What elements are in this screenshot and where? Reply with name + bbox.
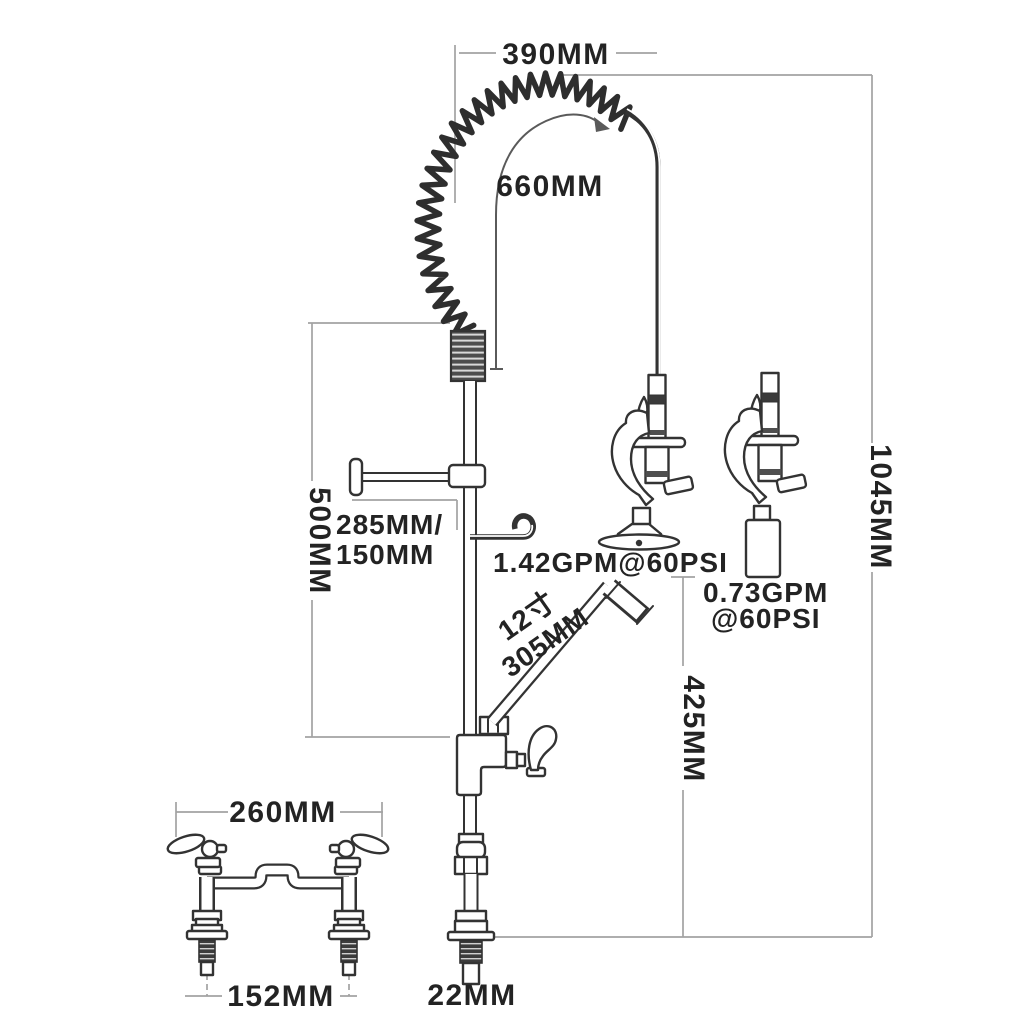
deck-left-inlet <box>187 911 227 975</box>
spray-head-stem <box>633 508 650 525</box>
tee-body <box>457 735 506 795</box>
deck-base-width-label: 260MM <box>229 796 337 829</box>
dim-660-arrowhead <box>594 117 610 132</box>
spray-valve-flow-label: 1.42GPM@60PSI <box>493 547 728 578</box>
addon-faucet-tee <box>457 726 556 795</box>
low-flow-canister <box>746 520 780 577</box>
spray-head-high-flow <box>599 375 693 550</box>
shank-hex-coupler <box>455 857 487 874</box>
valve-stem-ridge <box>517 754 525 766</box>
deck-right-inlet <box>329 911 369 975</box>
riser-shank <box>448 834 494 984</box>
deck-right-handle <box>350 831 391 857</box>
faucet-fixture <box>166 73 807 984</box>
shank-threads <box>460 941 482 963</box>
deck-left-handle-hub <box>202 841 218 857</box>
deck-left-valve <box>166 831 226 874</box>
faucet-diagram-svg: 390MM 660MM 500MM 285MM/ 150MM 1.42GPM@6… <box>0 0 1024 1024</box>
bracket-length-label-line1: 285MM/ <box>336 509 443 540</box>
spray-head-low-flow <box>725 373 807 577</box>
shank-collar <box>456 911 486 921</box>
hose-arc-width-label: 390MM <box>502 38 610 71</box>
inlet-spacing-label: 152MM <box>227 980 335 1013</box>
deck-left-handle <box>166 831 207 857</box>
deck-right-handle-hub <box>338 841 354 857</box>
riser-height-label: 500MM <box>303 487 336 595</box>
dim-660-inner-arc <box>490 115 600 369</box>
diagram-canvas: 390MM 660MM 500MM 285MM/ 150MM 1.42GPM@6… <box>0 0 1024 1024</box>
wall-bracket-plate <box>350 459 362 495</box>
deck-right-valve <box>330 831 390 874</box>
wall-bracket-clamp <box>449 465 485 487</box>
valve-lever-handle <box>529 726 557 770</box>
low-flow-neck <box>754 506 770 520</box>
shank-flange <box>448 932 494 940</box>
hose-drop <box>626 109 660 377</box>
hose-length-label: 660MM <box>496 170 604 203</box>
spray-face-center <box>636 540 642 546</box>
spout-length-label: 12寸 305MM <box>478 575 595 683</box>
shank-coupler-ball <box>457 842 485 858</box>
low-flow-valve-label-line2: @60PSI <box>711 603 821 634</box>
deck-mount-base <box>166 831 391 975</box>
inlet-diameter-label: 22MM <box>427 979 516 1012</box>
hanger-hook <box>470 516 533 537</box>
valve-stem <box>506 752 517 768</box>
spout-clearance-label: 425MM <box>677 675 710 783</box>
spring-grip-base <box>451 331 485 381</box>
spring-hose-coil <box>417 73 630 335</box>
overall-height-label: 1045MM <box>864 444 897 570</box>
dimension-labels: 390MM 660MM 500MM 285MM/ 150MM 1.42GPM@6… <box>227 38 897 1013</box>
bracket-length-label-line2: 150MM <box>336 539 434 570</box>
